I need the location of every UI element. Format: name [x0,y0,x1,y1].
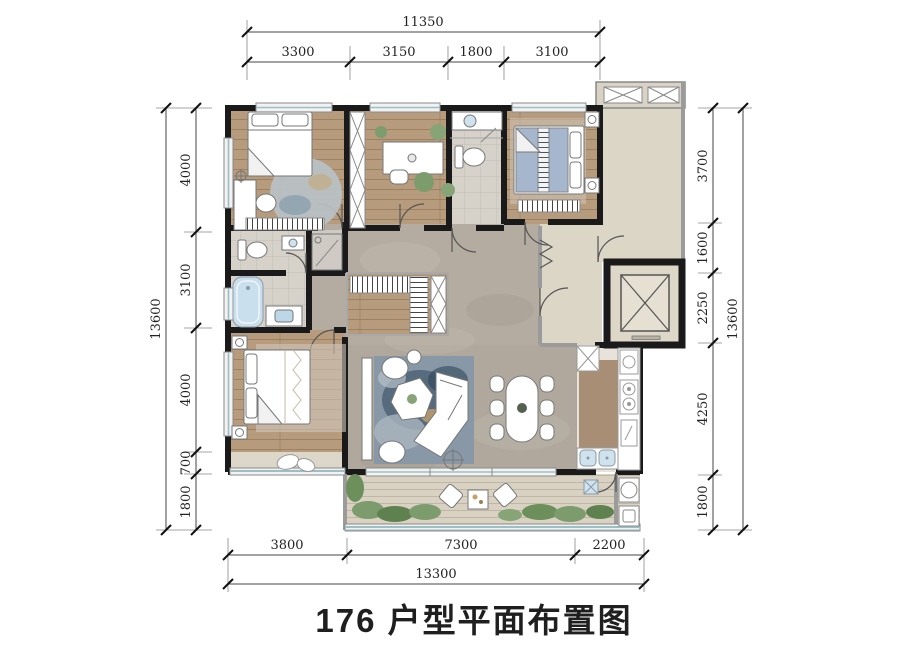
window-icon [256,103,332,112]
sliding-glass-door-icon [366,468,556,476]
window-icon [224,352,233,436]
plant-icon [414,172,434,192]
dim-bottom-seg-1: 3800 [270,538,303,553]
dim-bottom-overall: 13300 [415,567,456,582]
dim-top-seg-3: 1800 [459,45,492,60]
bed-icon [244,350,310,424]
dim-right-seg-1: 3700 [696,149,711,182]
bedroom-2 [510,112,599,212]
dim-left-overall: 13600 [149,298,164,339]
dim-left-seg-1: 4000 [179,153,194,186]
dim-right-seg-4: 4250 [696,392,711,425]
dim-right-seg-3: 2250 [696,291,711,324]
window-icon [512,103,586,112]
bathtub-icon [233,277,263,327]
duct-box-icon [577,346,599,371]
hanging-rail-icon [410,276,428,333]
vanity-icon [452,112,502,130]
nightstand-icon [232,426,247,439]
dim-top-overall: 11350 [402,15,443,30]
dim-left-seg-4: 700 [179,451,194,476]
floor-plan-sheet: 11350 3300 3150 1800 3100 13600 4000 310… [0,0,900,667]
nightstand-icon [585,178,599,193]
chair-icon [390,170,408,184]
dining-chair-icon [540,400,554,416]
elevator [607,262,682,345]
dim-bottom-seg-2: 7300 [444,538,477,553]
dim-right-seg-2: 1600 [696,231,711,264]
plan-title: 176 户型平面布置图 [315,602,632,639]
wardrobe-icon [431,276,446,333]
duct-shaft-strip [596,82,685,108]
cutting-board-icon [621,420,637,446]
window-icon [224,138,233,208]
dim-right-overall: 13600 [726,298,741,339]
dim-top-seg-1: 3300 [281,45,314,60]
shower-floor [309,230,345,273]
basin-icon [464,115,476,127]
hanging-rail-icon [350,276,410,293]
washer-icon [619,478,639,502]
laundry-cabinet-icon [619,506,639,526]
dining-chair-icon [490,376,504,392]
toilet-icon [455,146,485,168]
nightstand-icon [232,336,247,349]
wardrobe-icon [350,112,365,228]
entry-foyer-floor [540,224,602,345]
floor-plan-drawing: 11350 3300 3150 1800 3100 13600 4000 310… [0,0,900,667]
dining-chair-icon [490,400,504,416]
washbasin-icon [282,236,304,250]
dining-chair-icon [540,424,554,440]
side-table-icon [407,350,421,364]
master-bedroom [232,336,346,439]
radiator-icon [518,200,580,212]
centerpiece-icon [517,403,527,413]
window-icon [224,288,233,320]
chair-icon [256,194,276,212]
dim-right-seg-5: 1800 [696,485,711,518]
bed-icon [514,126,584,194]
dim-top-seg-4: 3100 [535,45,568,60]
window-icon [370,103,440,112]
stove-icon [620,380,638,414]
bed-icon [248,112,312,176]
plant-icon [441,183,455,197]
plant-icon [375,126,387,138]
dim-top-seg-2: 3150 [382,45,415,60]
balcony-table-icon [468,490,488,509]
teapot-icon [408,154,416,162]
dim-left-seg-5: 1800 [179,485,194,518]
floor-drain-icon [584,480,598,494]
plant-icon [430,124,446,140]
dining-area [490,376,554,442]
armchair-icon [379,441,405,463]
dining-chair-icon [540,376,554,392]
dim-left-seg-2: 3100 [179,263,194,296]
dim-left-seg-3: 4000 [179,373,194,406]
vanity-icon [266,306,302,326]
balcony-glazing-icon [345,524,640,531]
radiator-icon [246,218,324,230]
armchair-icon [382,357,408,379]
tv-console-icon [362,358,372,460]
living-room [362,350,474,471]
small-appliance-icon [620,350,638,374]
nightstand-icon [585,112,599,127]
toilet-icon [238,240,267,260]
dining-chair-icon [490,424,504,440]
kitchen-counter-run [579,360,618,448]
elevator-door-icon [632,336,660,340]
dim-bottom-seg-3: 2200 [592,538,625,553]
